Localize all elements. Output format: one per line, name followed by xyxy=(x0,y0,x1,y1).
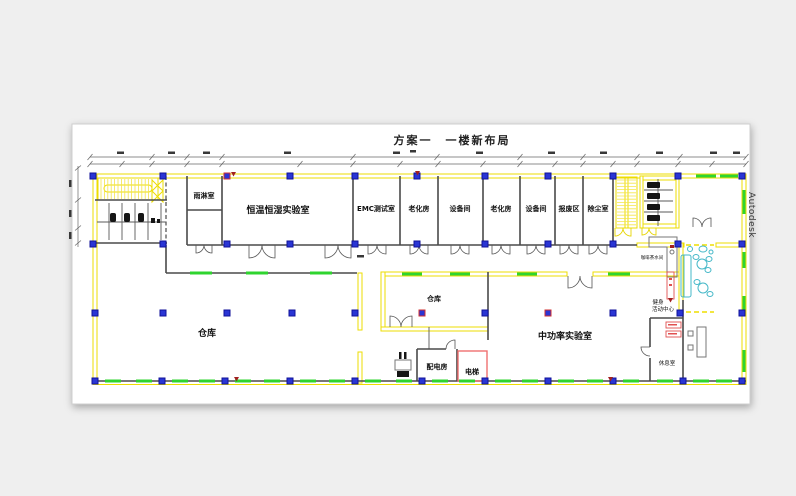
column-marker xyxy=(677,310,683,316)
dim-number xyxy=(69,180,72,187)
room-label-fitness-2: 活动中心 xyxy=(652,305,675,313)
dim-number xyxy=(117,152,124,155)
column-marker xyxy=(352,378,358,384)
column-marker xyxy=(352,173,358,179)
room-label-dust: 除尘室 xyxy=(588,204,609,213)
room-label-equipment-1: 设备间 xyxy=(450,204,471,213)
column-marker xyxy=(287,378,293,384)
room-label-elevator: 电梯 xyxy=(465,367,479,376)
dim-number xyxy=(410,150,416,153)
dim-number xyxy=(710,152,717,155)
dim-number xyxy=(733,152,740,155)
room-label-power-room: 配电房 xyxy=(427,362,448,371)
column-marker xyxy=(287,241,293,247)
dim-number xyxy=(548,152,555,155)
column-marker xyxy=(545,241,551,247)
room-label-mid-power-lab: 中功率实验室 xyxy=(538,330,592,342)
column-marker xyxy=(224,173,230,179)
room-label-equipment-2: 设备间 xyxy=(526,204,547,213)
dim-number xyxy=(357,255,364,258)
column-marker xyxy=(610,310,616,316)
dim-number xyxy=(393,152,400,155)
column-marker xyxy=(739,241,745,247)
column-marker xyxy=(419,310,425,316)
dim-number xyxy=(168,152,175,155)
dim-number xyxy=(203,152,210,155)
column-marker xyxy=(482,241,488,247)
column-marker xyxy=(414,241,420,247)
column-marker xyxy=(545,310,551,316)
dim-number xyxy=(69,210,72,217)
dim-number xyxy=(69,232,72,239)
column-marker xyxy=(680,378,686,384)
column-marker xyxy=(482,310,488,316)
column-marker xyxy=(92,310,98,316)
room-label-rain: 雨淋室 xyxy=(194,191,215,200)
column-marker xyxy=(482,378,488,384)
column-marker xyxy=(160,310,166,316)
column-marker xyxy=(610,173,616,179)
column-marker xyxy=(160,173,166,179)
room-label-temp-humidity-lab: 恒温恒湿实验室 xyxy=(246,204,309,216)
room-label-aging-1: 老化房 xyxy=(408,204,430,213)
dim-number xyxy=(600,152,607,155)
column-marker xyxy=(352,241,358,247)
room-label-emc: EMC测试室 xyxy=(357,204,395,213)
plan-title: 方案一 一楼新布局 xyxy=(394,133,511,147)
column-marker xyxy=(224,310,230,316)
room-label-aging-2: 老化房 xyxy=(490,204,512,213)
dim-number xyxy=(476,152,483,155)
column-marker xyxy=(352,310,358,316)
room-label-large-warehouse: 仓库 xyxy=(197,327,216,339)
column-marker xyxy=(90,241,96,247)
column-marker xyxy=(159,378,165,384)
room-label-fitness-1: 健身 xyxy=(652,298,664,306)
column-marker xyxy=(545,378,551,384)
column-marker xyxy=(419,378,425,384)
column-marker xyxy=(92,378,98,384)
column-marker xyxy=(224,241,230,247)
column-marker xyxy=(545,173,551,179)
room-label-lounge: 休息室 xyxy=(659,359,676,367)
column-marker xyxy=(675,241,681,247)
room-label-scrap: 报废区 xyxy=(559,204,580,213)
column-marker xyxy=(289,310,295,316)
column-marker xyxy=(287,173,293,179)
column-marker xyxy=(739,173,745,179)
column-marker xyxy=(482,173,488,179)
image-viewer-background: 方案一 一楼新布局 xyxy=(0,0,796,496)
room-label-small-warehouse: 仓库 xyxy=(426,294,441,303)
column-marker xyxy=(610,241,616,247)
room-label-coffee-pantry: 咖啡茶水间 xyxy=(641,254,664,261)
column-marker xyxy=(739,310,745,316)
dim-number xyxy=(656,152,663,155)
column-marker xyxy=(222,378,228,384)
autodesk-watermark: Autodesk xyxy=(746,192,756,238)
column-marker xyxy=(160,241,166,247)
column-marker xyxy=(739,378,745,384)
column-marker xyxy=(90,173,96,179)
dim-number xyxy=(284,152,291,155)
floor-plan-canvas: 方案一 一楼新布局 xyxy=(0,0,796,496)
column-marker xyxy=(675,173,681,179)
